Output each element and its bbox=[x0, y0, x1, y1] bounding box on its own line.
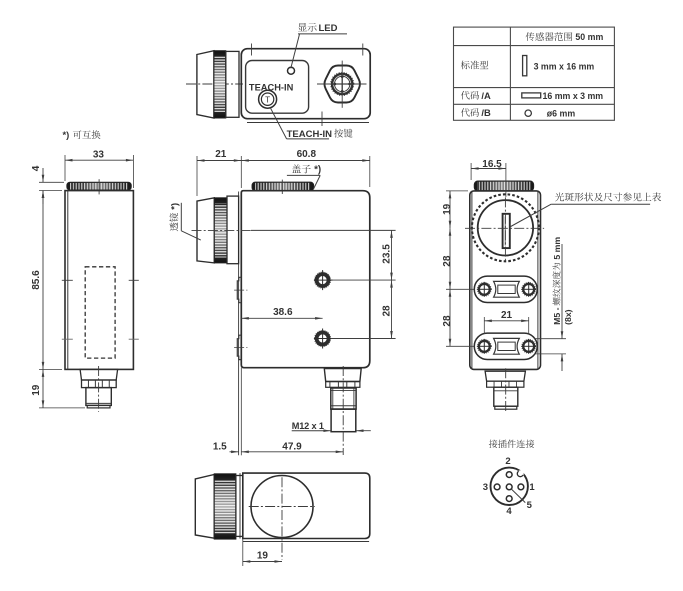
svg-text:38.6: 38.6 bbox=[273, 307, 293, 318]
svg-text:16.5: 16.5 bbox=[482, 159, 502, 170]
svg-text:2: 2 bbox=[505, 456, 510, 467]
svg-text:60.8: 60.8 bbox=[297, 149, 317, 160]
svg-text:/B: /B bbox=[481, 107, 491, 118]
svg-text:*): *) bbox=[63, 129, 70, 140]
svg-text:47.9: 47.9 bbox=[282, 441, 302, 452]
svg-text:16 mm x 3 mm: 16 mm x 3 mm bbox=[543, 91, 604, 101]
svg-text:M5 -: M5 - bbox=[552, 307, 562, 324]
svg-text:1.5: 1.5 bbox=[213, 441, 227, 452]
svg-text:(8x): (8x) bbox=[563, 309, 573, 325]
svg-text:33: 33 bbox=[93, 149, 105, 160]
svg-text:21: 21 bbox=[215, 149, 227, 160]
svg-text:LED: LED bbox=[319, 23, 338, 34]
svg-text:5: 5 bbox=[527, 500, 533, 511]
svg-text:21: 21 bbox=[501, 310, 513, 321]
svg-text:3 mm x 16 mm: 3 mm x 16 mm bbox=[534, 61, 595, 71]
svg-text:85.6: 85.6 bbox=[31, 270, 42, 290]
svg-text:3: 3 bbox=[483, 482, 488, 493]
svg-text:19: 19 bbox=[257, 550, 269, 561]
svg-text:28: 28 bbox=[442, 315, 453, 327]
svg-text:50 mm: 50 mm bbox=[575, 32, 603, 42]
svg-text:4: 4 bbox=[31, 165, 42, 171]
svg-text:28: 28 bbox=[381, 305, 392, 317]
svg-text:5 mm: 5 mm bbox=[552, 237, 562, 260]
svg-text:M12 x 1: M12 x 1 bbox=[292, 421, 324, 431]
svg-text:4: 4 bbox=[506, 506, 512, 517]
svg-text:28: 28 bbox=[442, 255, 453, 267]
svg-text:19: 19 bbox=[31, 384, 42, 396]
svg-text:1: 1 bbox=[529, 482, 535, 493]
svg-text:TEACH-IN: TEACH-IN bbox=[287, 129, 333, 140]
svg-text:19: 19 bbox=[442, 203, 453, 215]
svg-text:ø6 mm: ø6 mm bbox=[547, 108, 576, 118]
svg-text:*): *) bbox=[169, 203, 180, 210]
svg-text:*): *) bbox=[314, 165, 321, 176]
svg-text:/A: /A bbox=[481, 90, 491, 101]
svg-text:T: T bbox=[265, 95, 270, 104]
svg-text:23.5: 23.5 bbox=[381, 244, 392, 264]
